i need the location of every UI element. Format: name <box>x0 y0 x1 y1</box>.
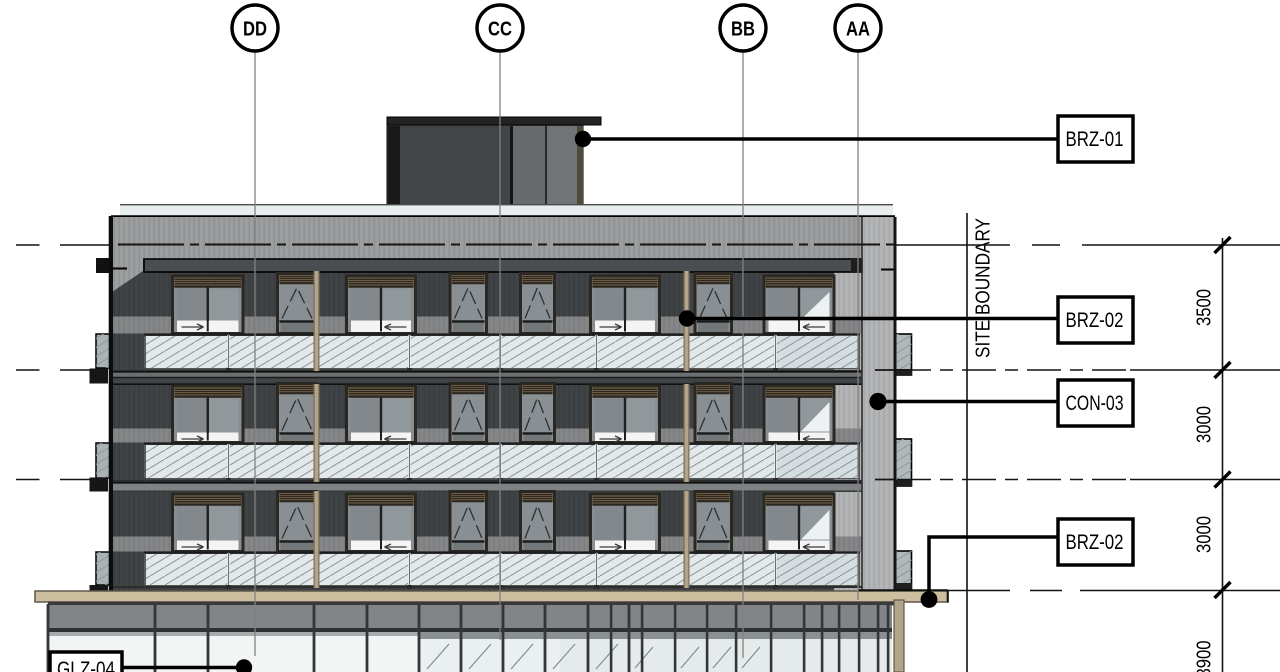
svg-text:SITE BOUNDARY: SITE BOUNDARY <box>972 218 994 358</box>
svg-text:3500: 3500 <box>1193 289 1215 326</box>
svg-text:AA: AA <box>846 19 870 41</box>
svg-text:BB: BB <box>731 19 755 41</box>
svg-text:GLZ-04: GLZ-04 <box>57 658 115 672</box>
svg-text:BRZ-02: BRZ-02 <box>1066 309 1124 332</box>
svg-text:CON-03: CON-03 <box>1066 392 1124 415</box>
svg-text:3000: 3000 <box>1193 516 1215 553</box>
svg-text:3000: 3000 <box>1193 406 1215 443</box>
svg-text:3900: 3900 <box>1193 641 1215 672</box>
svg-text:BRZ-02: BRZ-02 <box>1066 531 1124 554</box>
svg-text:BRZ-01: BRZ-01 <box>1066 128 1124 151</box>
svg-text:CC: CC <box>488 19 512 41</box>
svg-text:DD: DD <box>243 19 267 41</box>
